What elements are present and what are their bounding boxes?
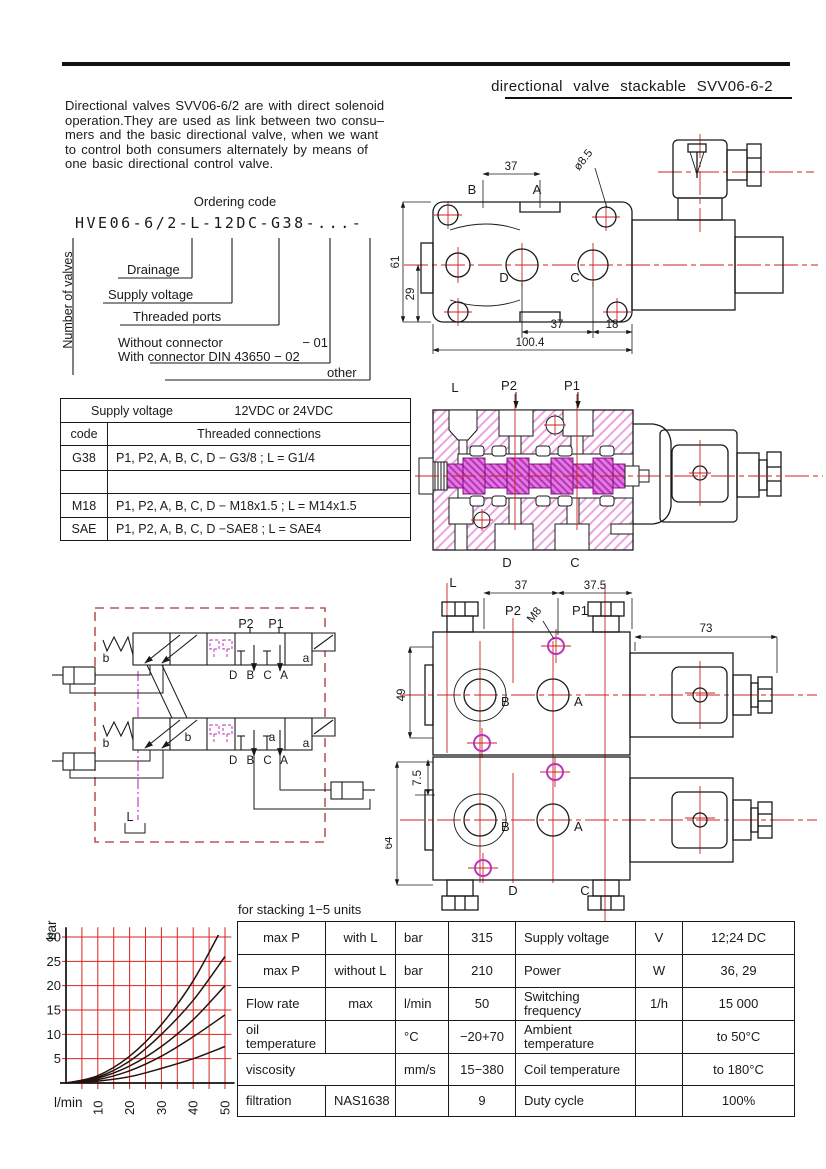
section-label-l: L bbox=[451, 380, 458, 395]
schematic-b-top: b bbox=[103, 651, 110, 665]
hydraulic-schematic: P2 P1 b a D B C A b b a a D B C A L bbox=[50, 583, 395, 853]
page-title: directional valve stackable SVV06-6-2 bbox=[472, 78, 792, 95]
pressure-flow-chart: 510152025301020304050barl/min bbox=[30, 893, 244, 1139]
stacked-dim-64: 64 bbox=[385, 836, 395, 849]
spec-row: Flow rate max l/min 50 Switching frequen… bbox=[238, 988, 795, 1021]
intro-paragraph: Directional valves SVV06-6/2 are with di… bbox=[65, 99, 410, 172]
stacked-label-m8: M8 bbox=[525, 605, 544, 625]
schematic-a-bottom: a bbox=[303, 736, 310, 750]
ordering-code: HVE06-6/2-L-12DC-G38-...- bbox=[75, 214, 363, 232]
ordering-drainage: Drainage bbox=[127, 262, 180, 277]
schematic-b-inner: b bbox=[185, 730, 192, 744]
stacked-dim-37-5: 37.5 bbox=[584, 580, 606, 592]
schematic-a-top: a bbox=[303, 651, 310, 665]
schematic-ports-bottom: D B C A bbox=[229, 755, 291, 767]
port-label-b: B bbox=[468, 182, 477, 197]
y-axis-label: bar bbox=[44, 920, 59, 940]
ordering-number-of-valves: Number of valves bbox=[61, 240, 75, 360]
ordering-threaded-ports: Threaded ports bbox=[133, 309, 221, 324]
stacked-dim-49: 49 bbox=[396, 689, 408, 702]
y-tick-label: 25 bbox=[47, 954, 61, 969]
port-label-a: A bbox=[533, 182, 542, 197]
stacked-label-l: L bbox=[449, 575, 456, 590]
voltage-supply-value: 12VDC or 24VDC bbox=[235, 404, 334, 418]
spec-table: max P with L bar 315 Supply voltage V 12… bbox=[237, 921, 795, 1117]
x-tick-label: 40 bbox=[186, 1101, 201, 1115]
voltage-row-conn: P1, P2, A, B, C, D − M18x1.5 ; L = M14x1… bbox=[108, 494, 411, 518]
schematic-a-inner: a bbox=[269, 730, 276, 744]
stacked-label-c: C bbox=[580, 883, 589, 898]
port-label-d: D bbox=[499, 270, 508, 285]
spec-row: oil temperature °C −20+70 Ambient temper… bbox=[238, 1021, 795, 1054]
schematic-l: L bbox=[127, 810, 134, 824]
x-tick-label: 10 bbox=[90, 1101, 105, 1115]
drawing-top-view: 37 ø8.5 B A 61 29 D C 37 18 100.4 bbox=[390, 122, 826, 384]
x-axis-label: l/min bbox=[54, 1095, 83, 1110]
dim-61: 61 bbox=[390, 256, 402, 269]
voltage-row-code: M18 bbox=[61, 494, 108, 518]
drawing-cross-section: L P2 P1 D C bbox=[415, 378, 826, 570]
top-rule bbox=[62, 62, 790, 66]
stacked-dim-37: 37 bbox=[515, 580, 528, 592]
title-underline bbox=[505, 97, 792, 99]
spec-row: max P without L bar 210 Power W 36, 29 bbox=[238, 955, 795, 988]
stacked-label-p2: P2 bbox=[505, 603, 521, 618]
voltage-row-code bbox=[61, 471, 108, 494]
stacked-label-p1: P1 bbox=[572, 603, 588, 618]
section-label-p2: P2 bbox=[501, 378, 517, 393]
voltage-table: Supply voltage 12VDC or 24VDC code Threa… bbox=[60, 398, 411, 541]
voltage-supply-label: Supply voltage bbox=[91, 404, 173, 418]
voltage-conn-header: Threaded connections bbox=[108, 423, 411, 446]
schematic-b-bottom: b bbox=[103, 736, 110, 750]
stacked-port-a2: A bbox=[574, 819, 583, 834]
ordering-supply-voltage: Supply voltage bbox=[108, 287, 193, 302]
schematic-p1: P1 bbox=[268, 617, 283, 631]
datasheet-page: directional valve stackable SVV06-6-2 Di… bbox=[0, 0, 826, 1169]
stacked-dim-7-5: 7.5 bbox=[412, 770, 424, 786]
stacked-port-a1: A bbox=[574, 694, 583, 709]
ordering-with-connector: With connector DIN 43650 − 02 bbox=[118, 349, 300, 364]
spec-row: viscosity mm/s 15−380 Coil temperature t… bbox=[238, 1054, 795, 1086]
port-label-c: C bbox=[570, 270, 579, 285]
stacked-label-d: D bbox=[508, 883, 517, 898]
ordering-block: Ordering code HVE06-6/2-L-12DC-G38-...- … bbox=[55, 190, 415, 390]
y-tick-label: 15 bbox=[47, 1002, 61, 1017]
voltage-code-header: code bbox=[61, 423, 108, 446]
voltage-row-conn bbox=[108, 471, 411, 494]
voltage-row-conn: P1, P2, A, B, C, D −SAE8 ; L = SAE4 bbox=[108, 518, 411, 541]
stacked-dim-73: 73 bbox=[700, 623, 713, 635]
dim-37-bottom: 37 bbox=[551, 319, 564, 331]
x-tick-label: 50 bbox=[218, 1101, 233, 1115]
dim-dia-8-5: ø8.5 bbox=[572, 147, 596, 173]
stacked-port-b1: B bbox=[501, 694, 510, 709]
spec-row: filtration NAS1638 9 Duty cycle 100% bbox=[238, 1086, 795, 1117]
stacked-port-b2: B bbox=[501, 819, 510, 834]
voltage-row-code: SAE bbox=[61, 518, 108, 541]
ordering-title: Ordering code bbox=[155, 194, 315, 209]
dim-100-4: 100.4 bbox=[516, 337, 545, 349]
x-tick-label: 20 bbox=[122, 1101, 137, 1115]
section-label-p1: P1 bbox=[564, 378, 580, 393]
spec-row: max P with L bar 315 Supply voltage V 12… bbox=[238, 922, 795, 955]
y-tick-label: 20 bbox=[47, 978, 61, 993]
y-tick-label: 10 bbox=[47, 1027, 61, 1042]
drawing-stacked-view: L 37 37.5 P2 M8 P1 73 49 7.5 64 B A B A … bbox=[385, 563, 826, 930]
schematic-ports-top: D B C A bbox=[229, 670, 291, 682]
ordering-other: other bbox=[327, 365, 357, 380]
x-tick-label: 30 bbox=[154, 1101, 169, 1115]
dim-37-top: 37 bbox=[505, 161, 518, 173]
y-tick-label: 5 bbox=[54, 1051, 61, 1066]
dim-18: 18 bbox=[606, 319, 619, 331]
voltage-row-code: G38 bbox=[61, 446, 108, 471]
ordering-without-connector: Without connector − 01 bbox=[118, 335, 328, 350]
spec-table-caption: for stacking 1−5 units bbox=[238, 902, 361, 917]
dim-29: 29 bbox=[405, 288, 417, 301]
schematic-p2: P2 bbox=[238, 617, 253, 631]
voltage-row-conn: P1, P2, A, B, C, D − G3/8 ; L = G1/4 bbox=[108, 446, 411, 471]
